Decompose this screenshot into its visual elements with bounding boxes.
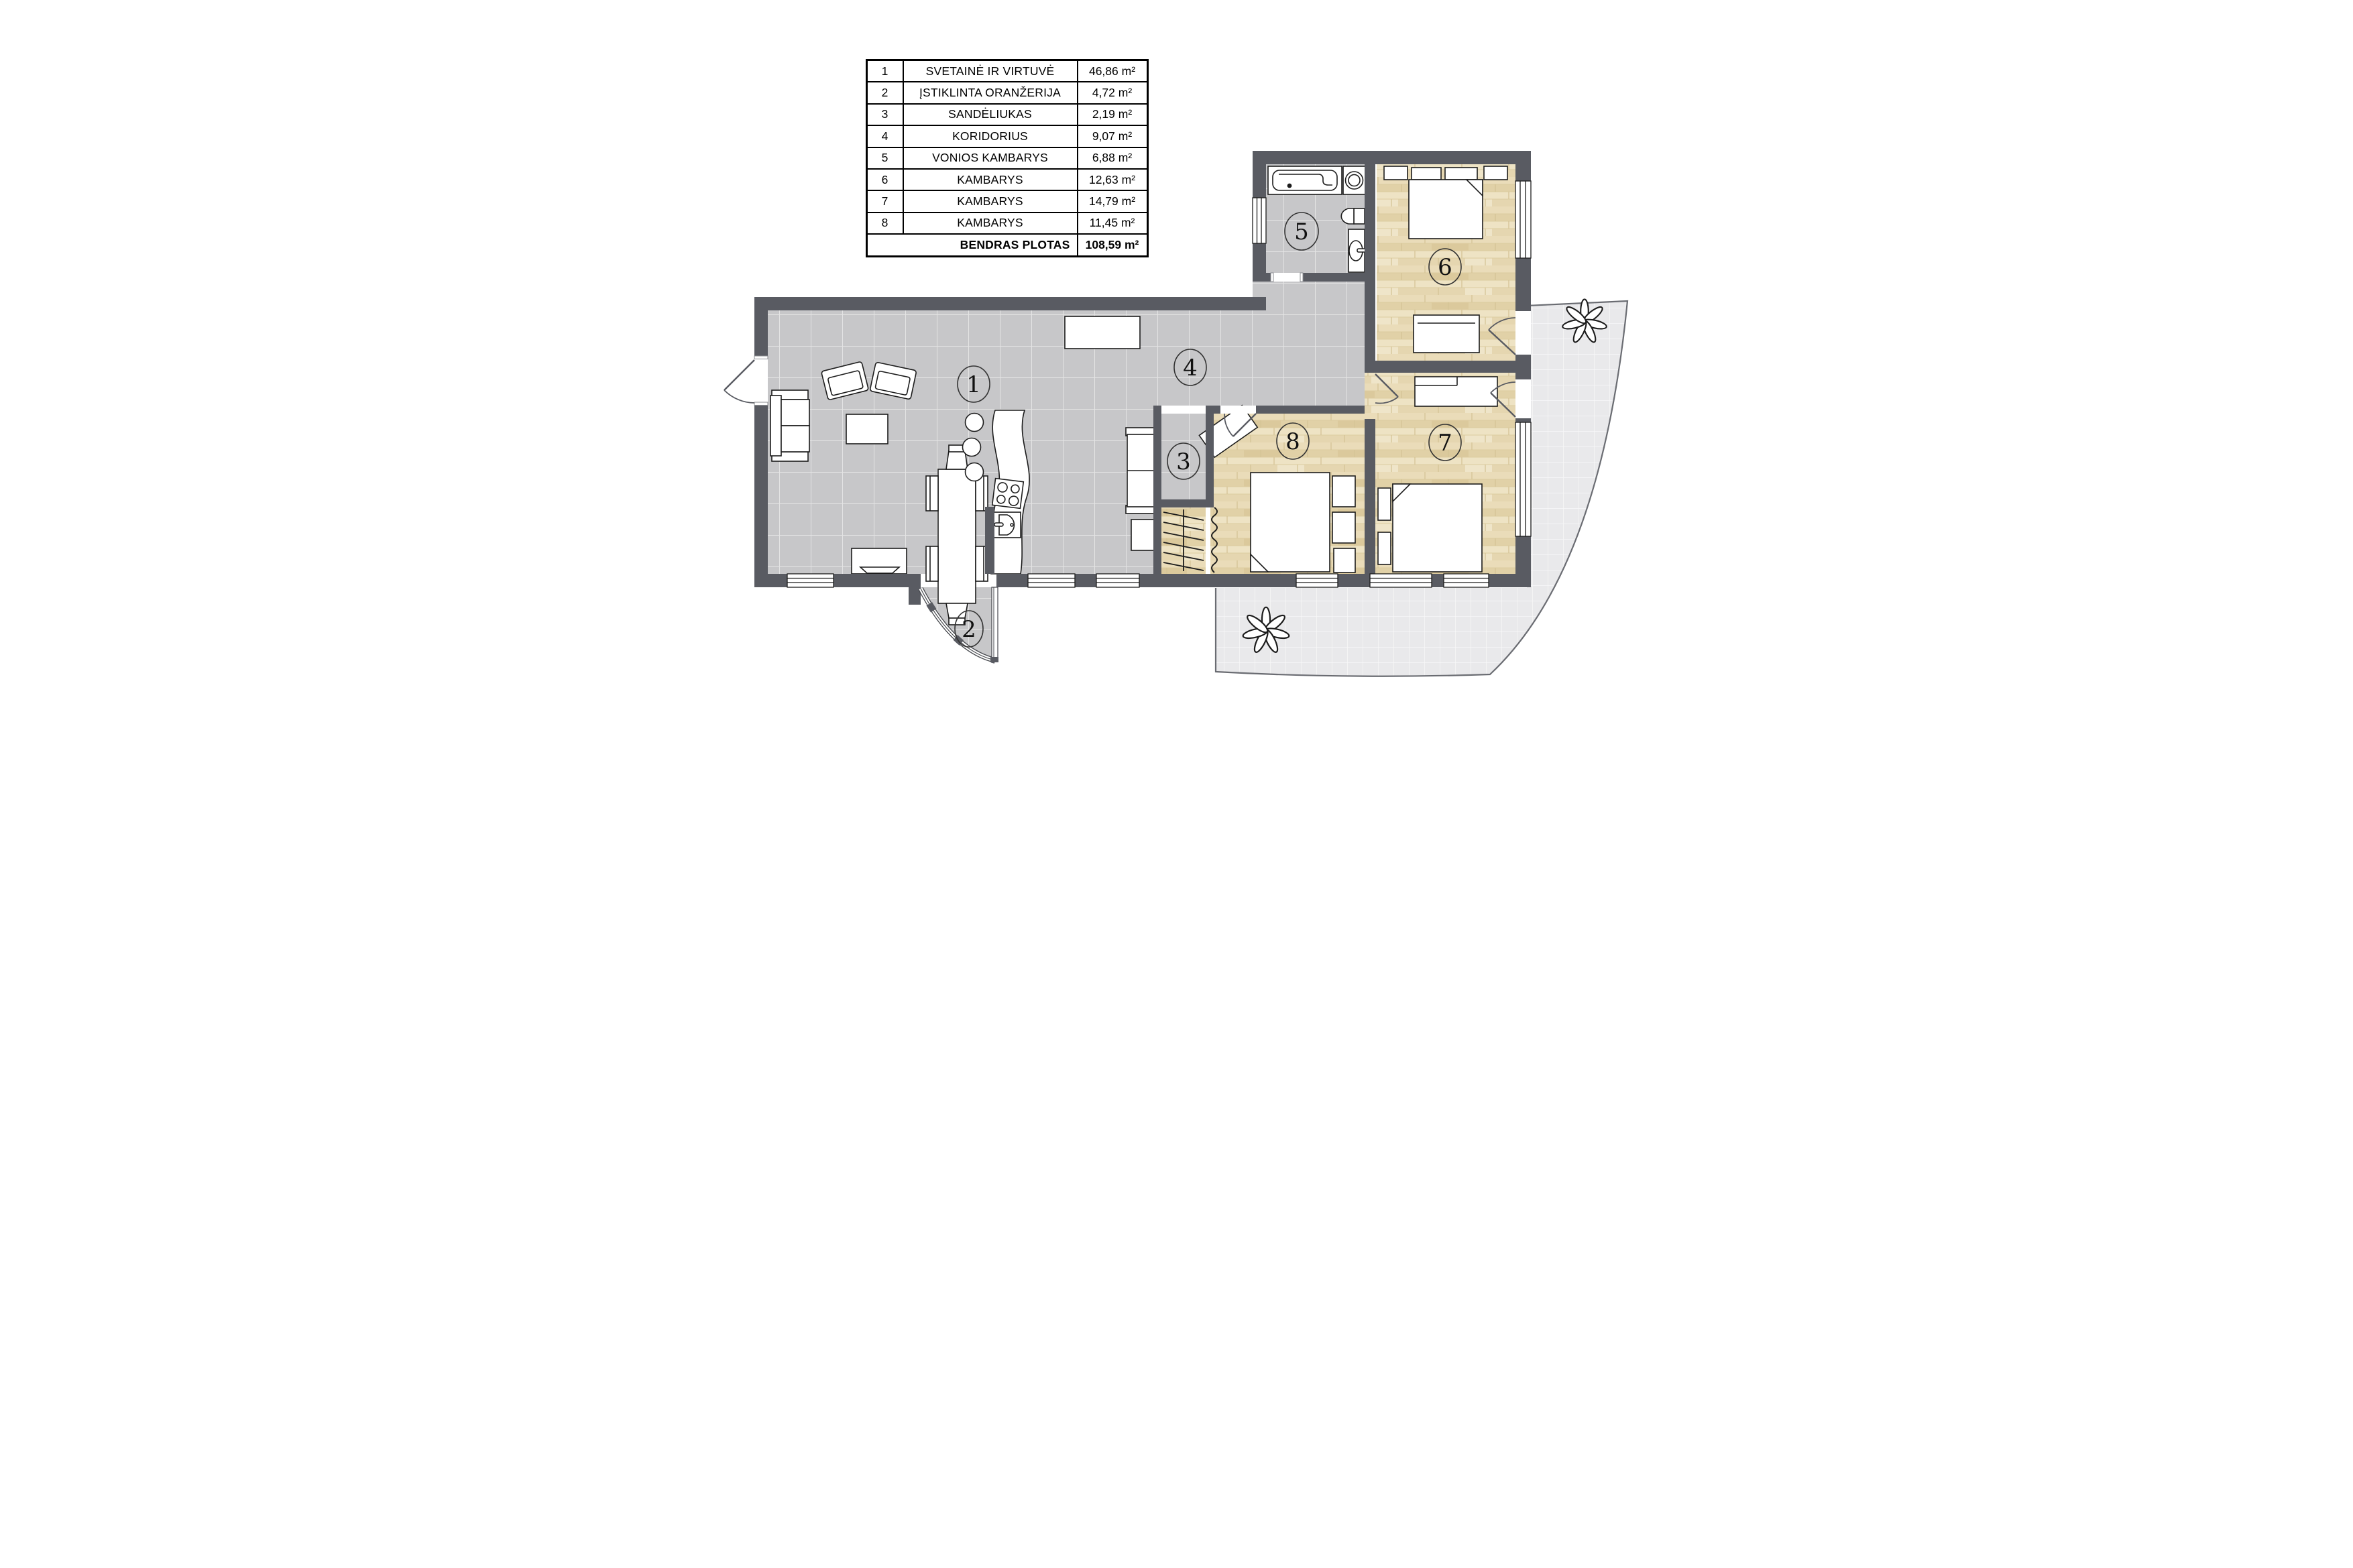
window <box>1028 574 1075 587</box>
bathroom-door <box>1271 273 1303 282</box>
window <box>1515 422 1531 536</box>
dresser-icon <box>1414 315 1479 353</box>
floorplan-page: 1 SVETAINĖ IR VIRTUVĖ 46,86 m² 2 ĮSTIKLI… <box>654 0 1700 697</box>
bed-icon <box>1251 473 1355 572</box>
room-number: 1 <box>868 61 904 81</box>
stove-icon <box>992 479 1023 509</box>
svg-text:5: 5 <box>1294 219 1309 245</box>
legend-table: 1 SVETAINĖ IR VIRTUVĖ 46,86 m² 2 ĮSTIKLI… <box>866 59 1149 257</box>
window <box>1370 574 1432 587</box>
wall <box>1303 273 1365 282</box>
window <box>787 574 834 587</box>
tv-stand-icon <box>852 548 907 574</box>
washing-machine-icon <box>1343 166 1365 194</box>
room-number: 3 <box>868 105 904 125</box>
svg-text:2: 2 <box>962 616 976 643</box>
stool-icon <box>965 463 983 481</box>
svg-text:8: 8 <box>1285 428 1300 455</box>
room-name: KAMBARYS <box>904 191 1078 211</box>
wall <box>1253 273 1271 282</box>
wall <box>1253 151 1531 164</box>
wardrobe-icon <box>1415 377 1497 406</box>
total-label: BENDRAS PLOTAS <box>868 235 1078 255</box>
wall <box>1256 406 1365 414</box>
wall <box>754 574 921 587</box>
wall <box>1365 164 1375 373</box>
coffee-table-icon <box>846 414 888 444</box>
wall <box>1206 406 1214 507</box>
wall <box>1375 361 1515 373</box>
room-name: KAMBARYS <box>904 170 1078 190</box>
legend-row: 1 SVETAINĖ IR VIRTUVĖ 46,86 m² <box>868 61 1147 82</box>
wall <box>754 297 1266 310</box>
wall <box>754 297 768 359</box>
floorplan-drawing: 1 2 3 4 5 6 7 <box>654 0 1700 697</box>
room-number: 2 <box>868 82 904 103</box>
stool-icon <box>965 414 983 432</box>
conservatory-glass-side <box>990 587 998 662</box>
bathroom-sink-icon <box>1348 229 1366 272</box>
legend-row: 7 KAMBARYS 14,79 m² <box>868 191 1147 213</box>
legend-total-row: BENDRAS PLOTAS 108,59 m² <box>868 235 1147 255</box>
toilet-icon <box>1341 208 1365 224</box>
room-name: KORIDORIUS <box>904 126 1078 146</box>
wall <box>1365 419 1375 574</box>
total-area: 108,59 m² <box>1078 235 1147 255</box>
room-name: SANDĖLIUKAS <box>904 105 1078 125</box>
wall <box>1153 406 1161 574</box>
room-number: 5 <box>868 148 904 168</box>
side-table-icon <box>1131 520 1154 550</box>
wall <box>985 507 994 574</box>
room-area: 46,86 m² <box>1078 61 1147 81</box>
legend-row: 4 KORIDORIUS 9,07 m² <box>868 126 1147 147</box>
bed-icon <box>1378 484 1482 572</box>
wall <box>754 403 768 587</box>
room-number: 4 <box>868 126 904 146</box>
room-area: 14,79 m² <box>1078 191 1147 211</box>
window <box>1096 574 1139 587</box>
window <box>1515 181 1531 258</box>
room-number: 7 <box>868 191 904 211</box>
hall-cabinet-icon <box>1065 316 1140 349</box>
svg-text:1: 1 <box>966 371 981 398</box>
svg-text:4: 4 <box>1183 355 1198 381</box>
svg-text:7: 7 <box>1438 430 1452 457</box>
bathtub-icon <box>1268 166 1342 194</box>
room-area: 12,63 m² <box>1078 170 1147 190</box>
room-area: 6,88 m² <box>1078 148 1147 168</box>
sofa-icon <box>770 390 809 461</box>
room-number: 6 <box>868 170 904 190</box>
room-number: 8 <box>868 213 904 233</box>
legend-row: 6 KAMBARYS 12,63 m² <box>868 170 1147 191</box>
window <box>1253 198 1266 243</box>
room-area: 4,72 m² <box>1078 82 1147 103</box>
kitchen-sink-icon <box>994 512 1021 538</box>
legend-row: 3 SANDĖLIUKAS 2,19 m² <box>868 105 1147 126</box>
svg-text:3: 3 <box>1176 448 1191 475</box>
room-name: ĮSTIKLINTA ORANŽERIJA <box>904 82 1078 103</box>
room-area: 9,07 m² <box>1078 126 1147 146</box>
room-name: VONIOS KAMBARYS <box>904 148 1078 168</box>
window <box>1444 574 1489 587</box>
entrance-door <box>724 356 768 406</box>
window <box>1296 574 1338 587</box>
room-area: 2,19 m² <box>1078 105 1147 125</box>
room-area: 11,45 m² <box>1078 213 1147 233</box>
legend-row: 2 ĮSTIKLINTA ORANŽERIJA 4,72 m² <box>868 82 1147 104</box>
side-couch-icon <box>1126 428 1157 514</box>
legend-row: 5 VONIOS KAMBARYS 6,88 m² <box>868 148 1147 170</box>
dining-table-icon <box>938 469 976 603</box>
legend-row: 8 KAMBARYS 11,45 m² <box>868 213 1147 235</box>
room-name: KAMBARYS <box>904 213 1078 233</box>
wall <box>1153 499 1214 507</box>
stool-icon <box>962 438 980 457</box>
svg-text:6: 6 <box>1438 254 1452 281</box>
room-name: SVETAINĖ IR VIRTUVĖ <box>904 61 1078 81</box>
